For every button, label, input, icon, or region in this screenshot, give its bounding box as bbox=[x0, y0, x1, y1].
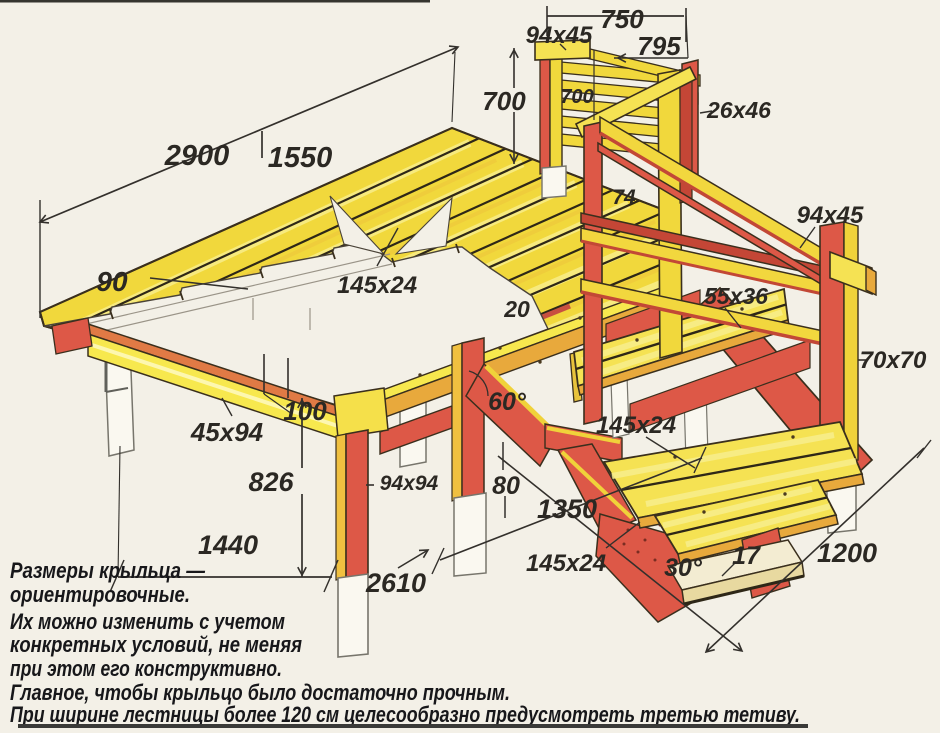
svg-text:145x24: 145x24 bbox=[337, 272, 417, 299]
svg-text:ориентировочные.: ориентировочные. bbox=[10, 582, 190, 607]
svg-text:2610: 2610 bbox=[365, 568, 426, 598]
svg-text:60°: 60° bbox=[488, 388, 527, 416]
svg-text:70x70: 70x70 bbox=[860, 347, 927, 374]
svg-text:При ширине лестницы более 120: При ширине лестницы более 120 см целесоо… bbox=[10, 702, 800, 727]
svg-text:90: 90 bbox=[96, 266, 128, 297]
svg-text:Их можно изменить с учетом: Их можно изменить с учетом bbox=[10, 609, 285, 634]
svg-text:при этом его конструктивно.: при этом его конструктивно. bbox=[10, 656, 282, 681]
svg-text:700: 700 bbox=[482, 86, 526, 116]
svg-text:1200: 1200 bbox=[817, 538, 877, 568]
svg-text:74: 74 bbox=[612, 186, 636, 209]
svg-text:795: 795 bbox=[637, 31, 681, 61]
svg-text:94x45: 94x45 bbox=[797, 202, 864, 229]
svg-text:30°: 30° bbox=[664, 554, 703, 582]
svg-text:145x24: 145x24 bbox=[596, 412, 676, 439]
svg-text:80: 80 bbox=[492, 472, 520, 500]
svg-text:700: 700 bbox=[560, 86, 593, 108]
svg-text:826: 826 bbox=[248, 467, 294, 497]
svg-text:100: 100 bbox=[283, 396, 327, 426]
svg-text:26x46: 26x46 bbox=[706, 97, 771, 123]
svg-text:1350: 1350 bbox=[537, 494, 597, 524]
svg-text:1440: 1440 bbox=[198, 530, 258, 560]
svg-text:750: 750 bbox=[600, 4, 644, 34]
svg-text:конкретных условий, не меняя: конкретных условий, не меняя bbox=[10, 632, 302, 657]
svg-text:1550: 1550 bbox=[268, 142, 333, 174]
svg-text:145x24: 145x24 bbox=[526, 550, 606, 577]
svg-text:94x94: 94x94 bbox=[380, 472, 439, 495]
svg-text:94x45: 94x45 bbox=[526, 22, 593, 49]
svg-text:2900: 2900 bbox=[164, 140, 230, 172]
svg-text:Размеры крыльца —: Размеры крыльца — bbox=[10, 558, 206, 583]
svg-text:55x36: 55x36 bbox=[704, 283, 768, 309]
svg-text:17: 17 bbox=[732, 542, 761, 570]
svg-text:45x94: 45x94 bbox=[190, 417, 264, 447]
svg-text:20: 20 bbox=[503, 296, 530, 322]
